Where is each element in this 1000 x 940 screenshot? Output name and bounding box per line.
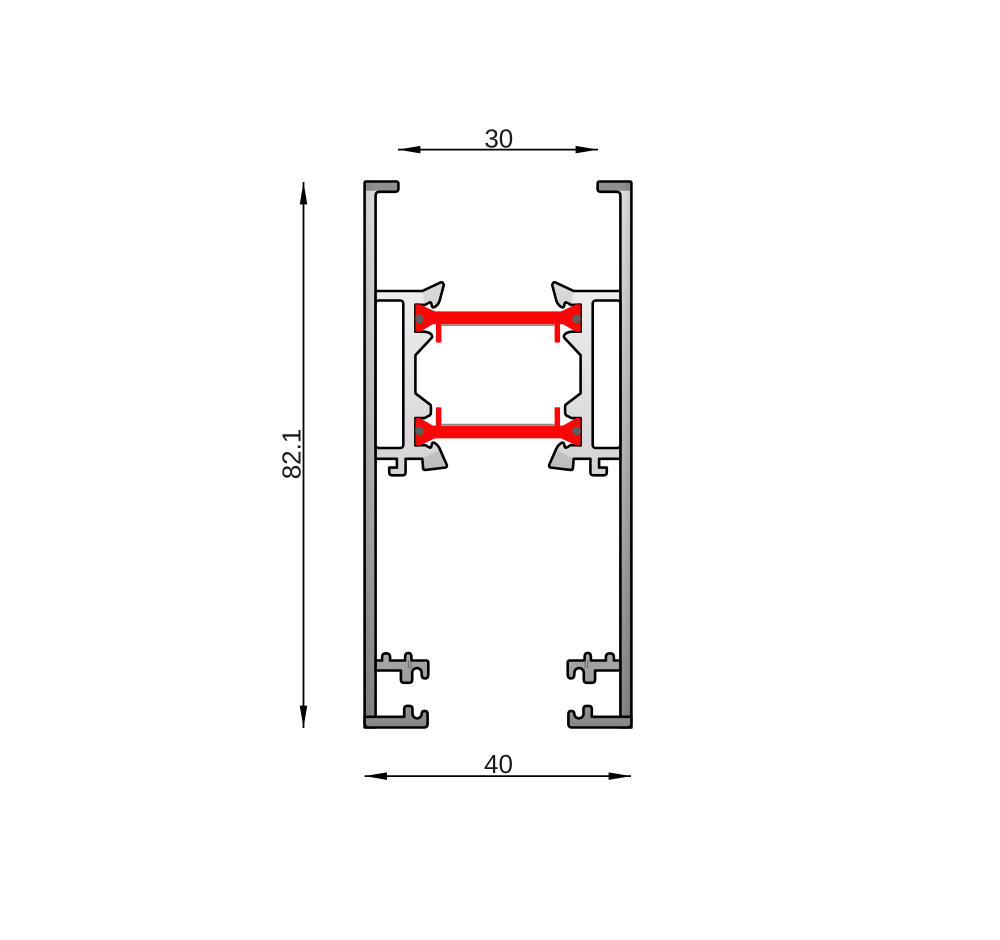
svg-text:40: 40 <box>484 749 513 779</box>
svg-text:82.1: 82.1 <box>277 429 307 480</box>
svg-text:30: 30 <box>484 123 513 153</box>
